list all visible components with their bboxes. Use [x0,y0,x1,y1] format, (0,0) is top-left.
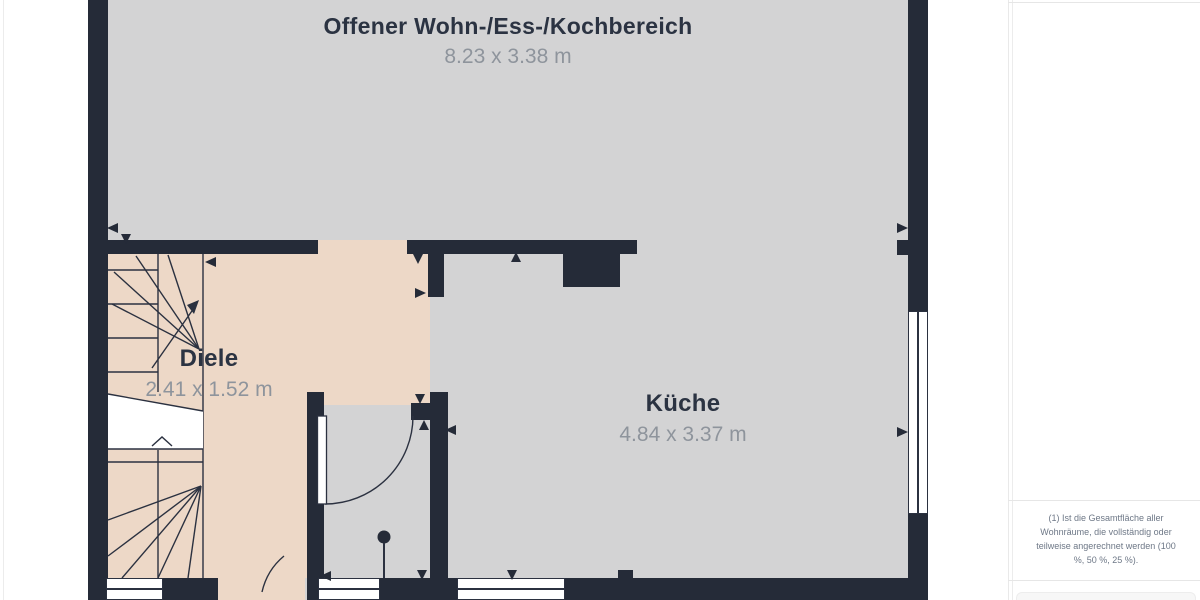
card-top-edge [1008,2,1200,3]
wall-bottom-c [565,578,928,600]
room-label-diele: Diele 2.41 x 1.52 m [109,345,309,402]
wall-bottom-b [380,578,457,600]
room-label-living: Offener Wohn-/Ess-/Kochbereich 8.23 x 3.… [108,13,908,69]
footnote: (1) Ist die Gesamtfläche aller Wohnräume… [1030,511,1182,567]
room-name: Küche [533,390,833,418]
window-mullion [319,588,379,590]
room-dimensions: 4.84 x 3.37 m [533,423,833,447]
window-bottom-center [318,578,380,600]
sidebar-divider-vertical [1008,0,1009,600]
floor-diele-opening [318,240,407,254]
window-mullion [458,588,564,590]
next-section-card [1016,592,1196,600]
room-dimensions: 8.23 x 3.38 m [108,45,908,69]
card-left-edge [1012,0,1013,600]
wall-right-upper [908,0,928,311]
wall-nub [618,570,633,578]
divider [1008,580,1200,581]
wall-top-diele [88,240,318,254]
wall-bottom-a [163,578,218,600]
sidebar: (1) Ist die Gesamtfläche aller Wohnräume… [1008,0,1200,600]
wall-stub-right [897,240,908,255]
divider [1008,500,1200,501]
floor-small-room [324,405,430,578]
wall-small-room-left [307,392,324,600]
window-mullion [107,588,162,590]
wall-top-kueche [407,240,637,254]
wall-small-room-lintel [411,403,430,420]
room-name: Diele [109,345,309,373]
floor-plan: Offener Wohn-/Ess-/Kochbereich 8.23 x 3.… [0,0,1010,600]
room-name: Offener Wohn-/Ess-/Kochbereich [108,13,908,40]
window-bottom-right [457,578,565,600]
wall-kueche-doorpost [428,254,444,297]
chimney-block [563,254,620,287]
room-dimensions: 2.41 x 1.52 m [109,378,309,402]
wall-left [88,0,108,600]
window-right [908,311,928,514]
wall-small-room-right [430,392,448,600]
floor-entry-passage [218,578,305,600]
room-label-kueche: Küche 4.84 x 3.37 m [533,390,833,447]
window-mullion [917,312,919,513]
window-bottom-left [106,578,163,600]
